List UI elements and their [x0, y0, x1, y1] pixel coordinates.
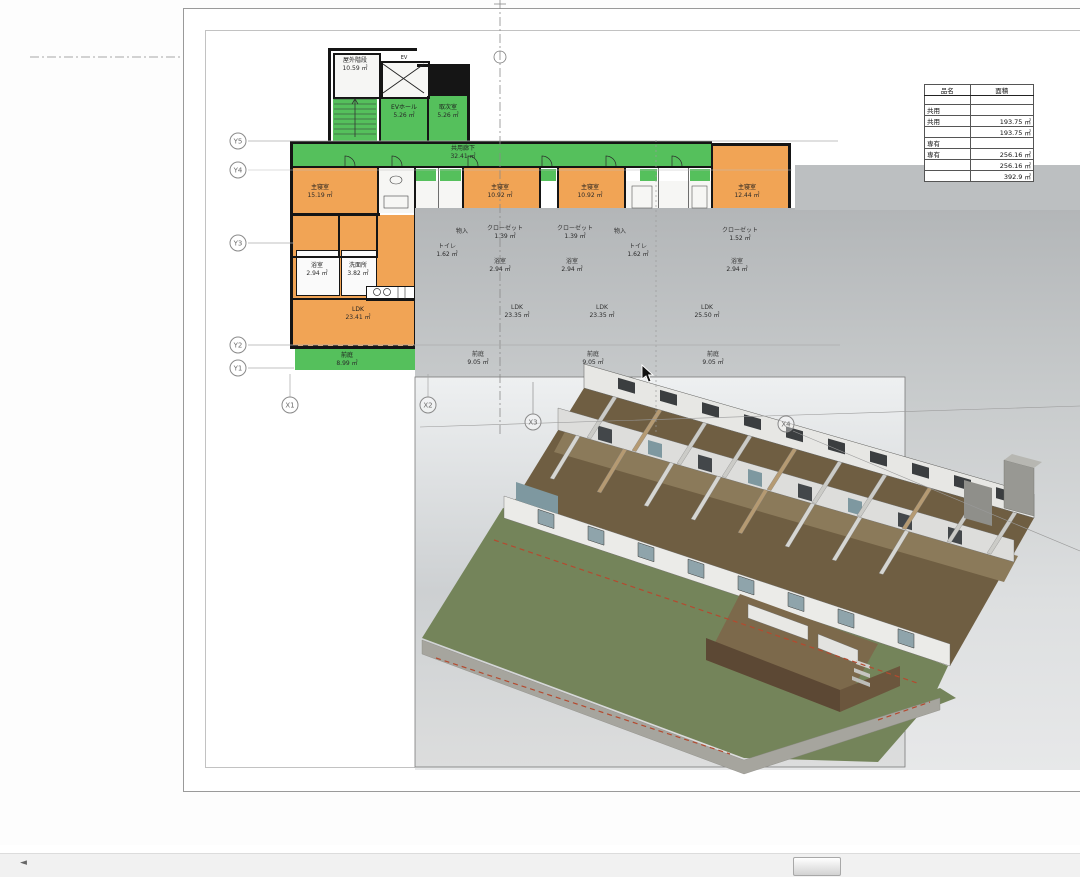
label-ldk2: LDK23.35 ㎡ — [504, 304, 529, 319]
elevator-x-symbol — [383, 64, 424, 93]
label-ev: EV — [401, 55, 408, 61]
table-row: 256.16 ㎡ — [925, 160, 1034, 171]
grid-bubble-x2[interactable]: X2 — [420, 397, 437, 414]
label-ldk3: LDK23.35 ㎡ — [589, 304, 614, 319]
table-header-name: 品名 — [925, 85, 971, 96]
grid-bubble-y5[interactable]: Y5 — [230, 133, 247, 150]
label-toilet1: トイレ1.62 ㎡ — [436, 243, 457, 258]
table-total-row: 392.9 ㎡ — [925, 171, 1034, 182]
label-niwa3: 前庭9.05 ㎡ — [582, 351, 603, 366]
label-toritsugi: 取次室5.26 ㎡ — [437, 104, 458, 119]
grid-bubble-y3[interactable]: Y3 — [230, 235, 247, 252]
label-closet1: クローゼット1.39 ㎡ — [487, 225, 523, 240]
label-niwa1: 前庭8.99 ㎡ — [336, 352, 357, 367]
table-row: 専有256.16 ㎡ — [925, 149, 1034, 160]
grid-bubble-y1[interactable]: Y1 — [230, 360, 247, 377]
status-strip — [0, 845, 1080, 853]
label-toilet2: トイレ1.62 ㎡ — [627, 243, 648, 258]
horizontal-scrollbar[interactable] — [0, 853, 1080, 877]
mouse-cursor — [640, 364, 656, 384]
label-closet3: クローゼット1.52 ㎡ — [722, 227, 758, 242]
application-canvas[interactable]: 屋外階段10.59 ㎡ EV EVホール5.26 ㎡ 取次室5.26 ㎡ 共用廊… — [0, 0, 1080, 877]
table-row: 共用 — [925, 105, 1034, 116]
label-bed4: 主寝室12.44 ㎡ — [734, 184, 759, 199]
grid-bubble-y4[interactable]: Y4 — [230, 162, 247, 179]
grid-bubble-x3[interactable]: X3 — [525, 414, 542, 431]
label-ev-hall: EVホール5.26 ㎡ — [391, 104, 417, 119]
label-mono1: 物入 — [456, 228, 468, 236]
stair-treads — [334, 99, 376, 137]
label-bath2: 浴室2.94 ㎡ — [561, 258, 582, 273]
door-swings — [345, 156, 682, 166]
label-closet2: クローゼット1.39 ㎡ — [557, 225, 593, 240]
label-ldk1: LDK23.41 ㎡ — [345, 306, 370, 321]
table-row: 193.75 ㎡ — [925, 127, 1034, 138]
label-bed3: 主寝室10.92 ㎡ — [577, 184, 602, 199]
table-row: 専有 — [925, 138, 1034, 149]
label-outdoor-stair: 屋外階段10.59 ㎡ — [342, 57, 367, 72]
table-row: 共用193.75 ㎡ — [925, 116, 1034, 127]
annotation-overlay — [0, 0, 1080, 877]
scroll-left-arrow[interactable]: ◄ — [20, 858, 27, 868]
table-header-area: 面積 — [970, 85, 1033, 96]
label-bath3: 浴室2.94 ㎡ — [726, 258, 747, 273]
label-ldk4: LDK25.50 ㎡ — [694, 304, 719, 319]
label-niwa4: 前庭9.05 ㎡ — [702, 351, 723, 366]
label-corridor: 共用廊下32.41 ㎡ — [450, 145, 475, 160]
table-row — [925, 96, 1034, 105]
horizontal-scrollbar-thumb[interactable] — [793, 857, 841, 876]
label-bath1: 浴室2.94 ㎡ — [489, 258, 510, 273]
grid-bubble-x4[interactable]: X4 — [778, 416, 795, 433]
label-niwa2: 前庭9.05 ㎡ — [467, 351, 488, 366]
label-bath4: 浴室2.94 ㎡ — [306, 262, 327, 277]
label-bed2: 主寝室10.92 ㎡ — [487, 184, 512, 199]
grid-bubble-x1[interactable]: X1 — [282, 397, 299, 414]
label-mono2: 物入 — [614, 228, 626, 236]
label-senmen: 洗面所3.82 ㎡ — [347, 262, 368, 277]
area-schedule-table: 品名 面積 共用 共用193.75 ㎡ 193.75 ㎡ 専有 専有256.16… — [924, 84, 1034, 182]
grid-bubble-y2[interactable]: Y2 — [230, 337, 247, 354]
label-bed1: 主寝室15.19 ㎡ — [307, 184, 332, 199]
